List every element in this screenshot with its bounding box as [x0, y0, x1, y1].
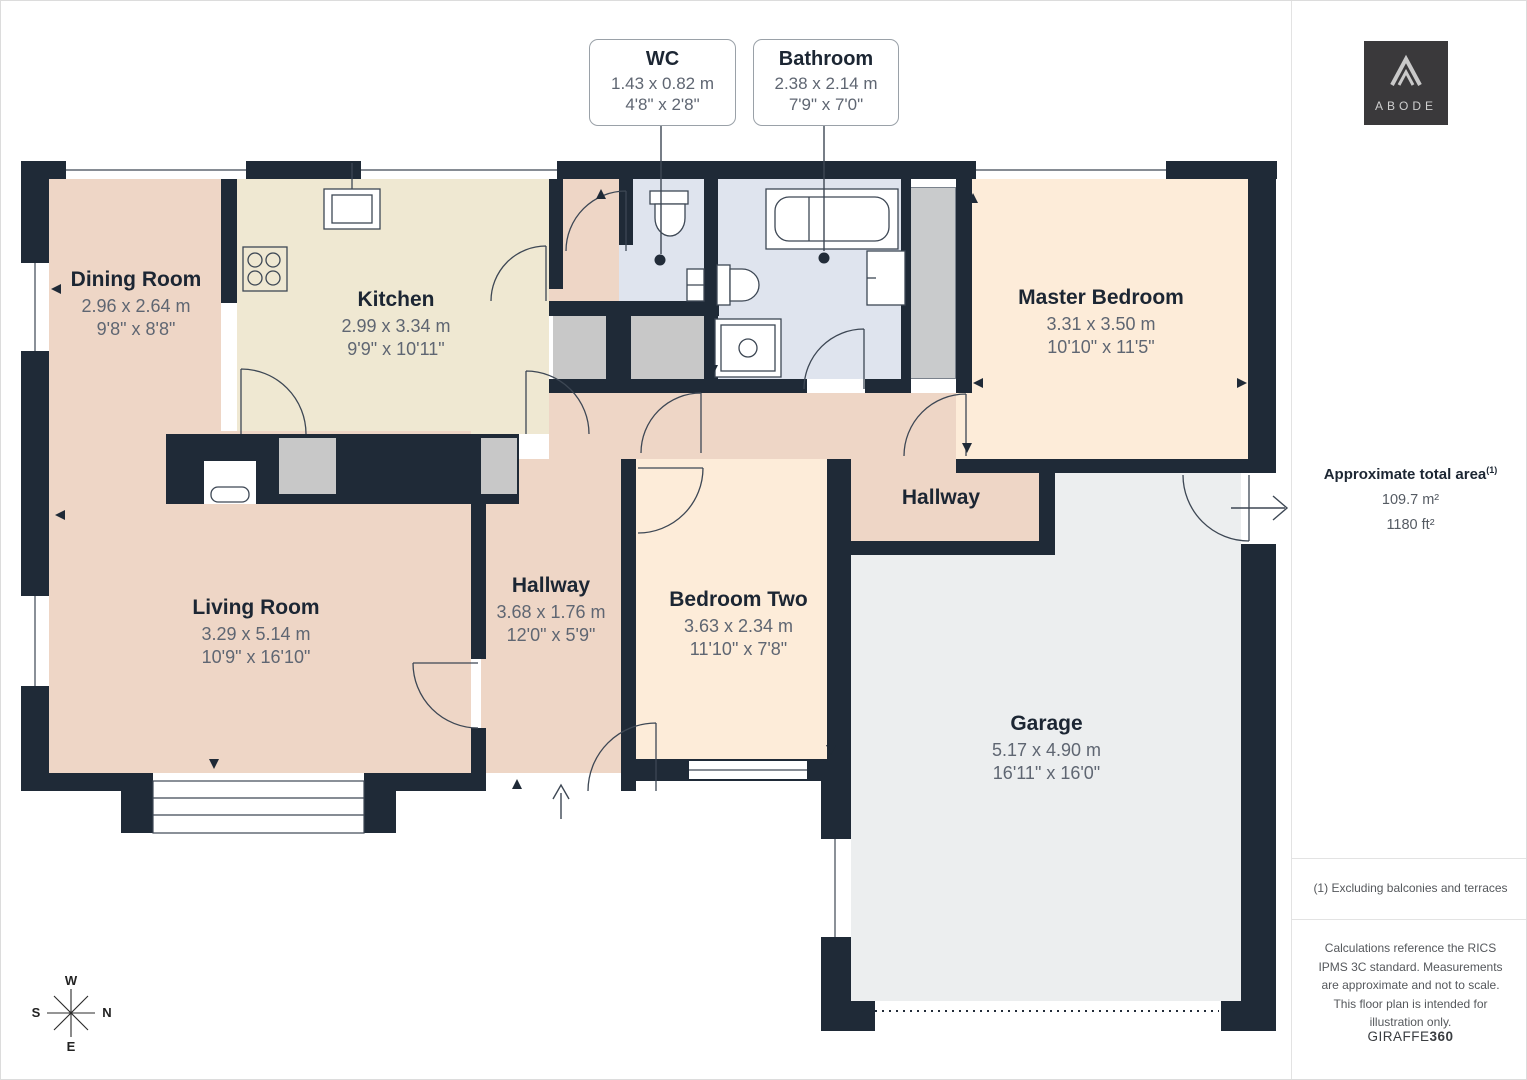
door-master	[904, 394, 966, 456]
sidebar-divider	[1292, 858, 1527, 859]
plan-lineart	[1, 1, 1291, 1080]
door-kitchen-lobby	[491, 246, 546, 301]
bathtub-icon	[766, 189, 898, 249]
shower-icon	[715, 319, 781, 377]
door-kitchen-hall	[526, 371, 589, 434]
total-area-title: Approximate total area(1)	[1292, 465, 1527, 483]
total-area-ft2: 1180 ft²	[1292, 517, 1527, 533]
door-corridor-hall	[641, 393, 701, 453]
disclaimer: Calculations reference the RICS IPMS 3C …	[1292, 939, 1527, 1032]
compass-icon	[47, 989, 95, 1037]
bath-cabinet-icon	[867, 251, 905, 305]
floorplan-page: Dining Room 2.96 x 2.64 m9'8" x 8'8" Kit…	[0, 0, 1527, 1080]
exit-arrow-icon	[1231, 496, 1287, 520]
wc-leader-dot	[655, 255, 666, 266]
door-entrance	[588, 723, 656, 791]
callout-name: WC	[590, 47, 735, 72]
callout-dims: 1.43 x 0.82 m4'8" x 2'8"	[590, 73, 735, 116]
stove-icon	[243, 247, 287, 291]
compass-east: E	[61, 1039, 81, 1054]
wc-basin-icon	[687, 269, 704, 301]
compass-south: S	[26, 1005, 46, 1020]
giraffe360-brand: GIRAFFE360	[1292, 1029, 1527, 1044]
door-hall-living	[413, 663, 478, 728]
total-area-superscript: (1)	[1486, 465, 1497, 475]
bathroom-leader-dot	[819, 253, 830, 264]
fireplace-icon	[211, 487, 249, 502]
wc-toilet-icon	[650, 191, 688, 236]
measure-arrows	[51, 189, 1247, 1012]
kitchen-sink-icon	[324, 163, 380, 229]
compass-west: W	[61, 973, 81, 988]
compass-north: N	[97, 1005, 117, 1020]
callout-dims: 2.38 x 2.14 m7'9" x 7'0"	[754, 73, 898, 116]
entrance-arrow-icon	[553, 785, 569, 819]
bath-toilet-icon	[717, 265, 759, 305]
sidebar: ABODE Approximate total area(1) 109.7 m²…	[1291, 1, 1527, 1080]
footnote: (1) Excluding balconies and terraces	[1292, 879, 1527, 898]
abode-triangle-icon	[1364, 41, 1448, 97]
door-bathroom	[804, 329, 864, 389]
door-dining-kitchen	[241, 369, 306, 434]
sidebar-divider	[1292, 919, 1527, 920]
total-area-block: Approximate total area(1) 109.7 m² 1180 …	[1292, 465, 1527, 533]
brand-giraffe: GIRAFFE	[1367, 1029, 1429, 1044]
door-bedroom2	[638, 468, 703, 533]
callout-name: Bathroom	[754, 47, 898, 72]
total-area-title-text: Approximate total area	[1324, 466, 1487, 483]
bathroom-callout: Bathroom 2.38 x 2.14 m7'9" x 7'0"	[753, 39, 899, 126]
fixtures	[211, 163, 905, 502]
window-frame-lines	[35, 170, 1166, 937]
door-wc	[566, 191, 626, 251]
wc-callout: WC 1.43 x 0.82 m4'8" x 2'8"	[589, 39, 736, 126]
abode-logo: ABODE	[1364, 41, 1448, 125]
brand-360: 360	[1429, 1029, 1453, 1044]
total-area-m2: 109.7 m²	[1292, 492, 1527, 508]
abode-logo-text: ABODE	[1364, 99, 1448, 113]
